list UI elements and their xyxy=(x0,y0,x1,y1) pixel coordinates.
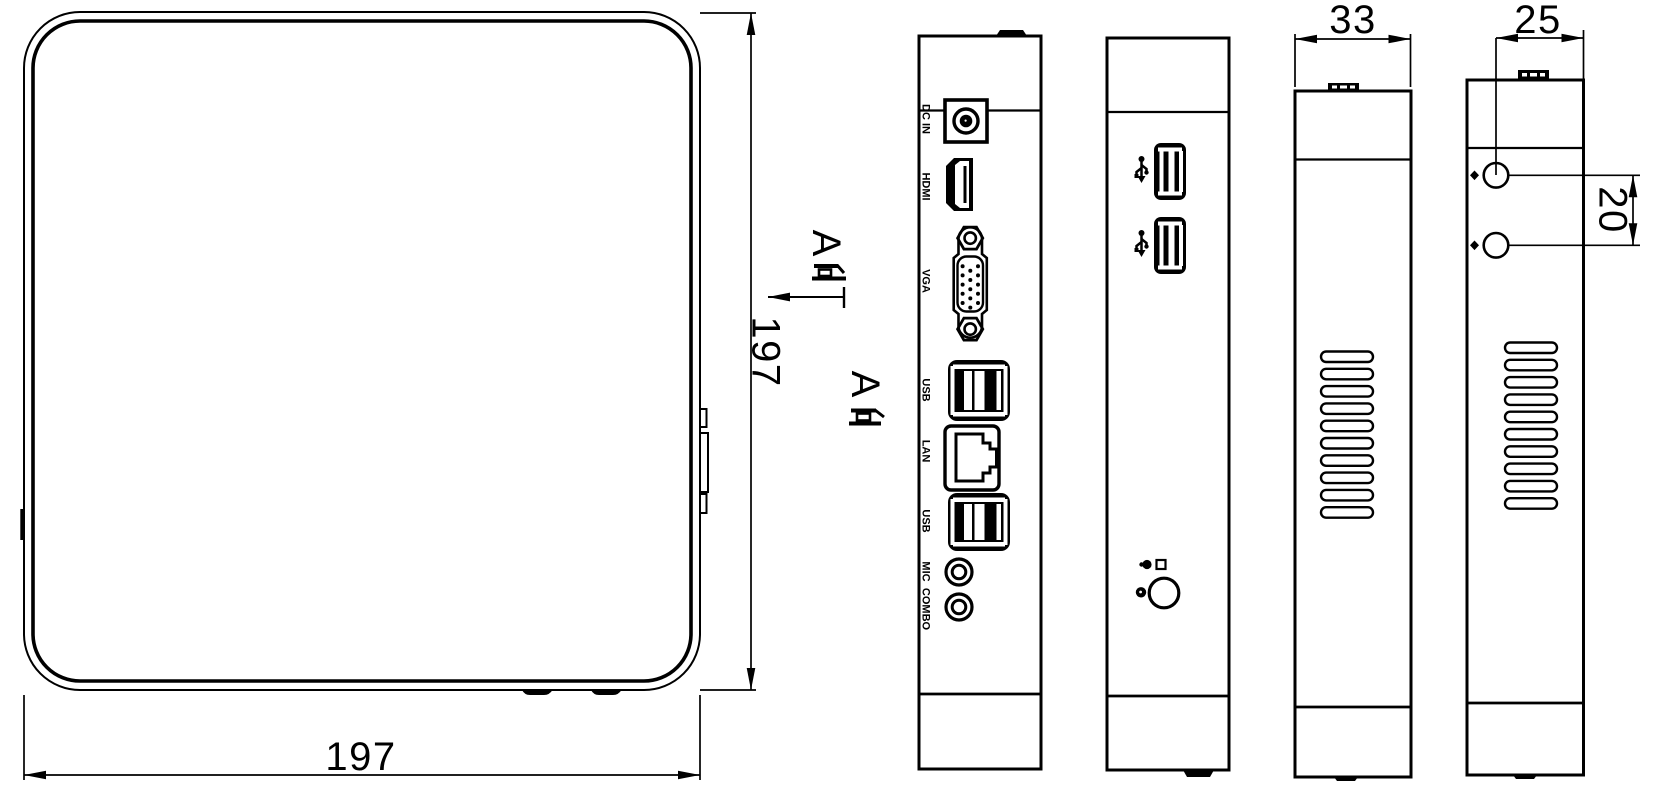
svg-text:MIC: MIC xyxy=(920,561,932,581)
svg-text:A: A xyxy=(843,371,887,398)
svg-text:197: 197 xyxy=(325,735,396,779)
svg-text:HDMI: HDMI xyxy=(920,172,932,200)
svg-text:25: 25 xyxy=(1514,0,1562,42)
svg-text:VGA: VGA xyxy=(920,269,932,293)
svg-text:LAN: LAN xyxy=(920,440,932,463)
svg-text:USB: USB xyxy=(920,509,932,532)
svg-text:COMBO: COMBO xyxy=(920,588,932,631)
svg-text:A: A xyxy=(804,230,848,257)
svg-text:33: 33 xyxy=(1329,0,1377,42)
svg-text:USB: USB xyxy=(920,378,932,401)
svg-text:197: 197 xyxy=(744,316,788,387)
svg-text:20: 20 xyxy=(1591,186,1635,234)
svg-text:DC IN: DC IN xyxy=(920,104,932,134)
